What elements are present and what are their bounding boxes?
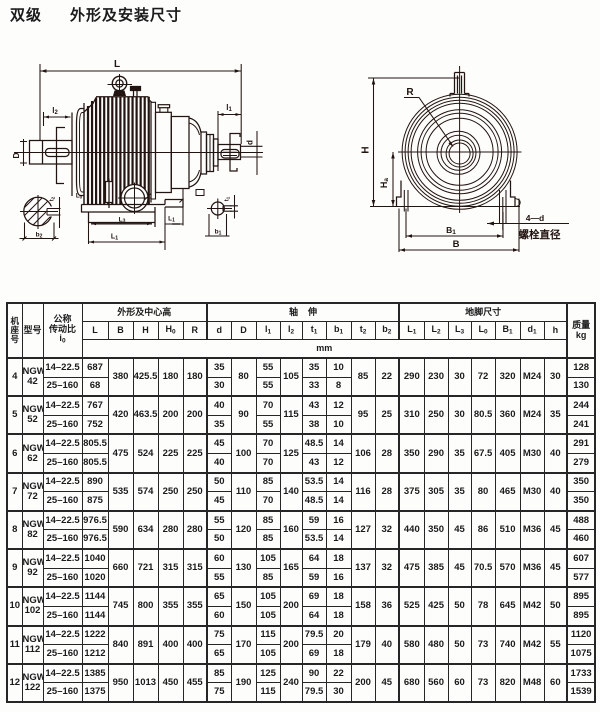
svg-text:L1: L1 [168, 216, 175, 224]
svg-text:B: B [453, 239, 460, 250]
svg-text:L3: L3 [119, 217, 126, 225]
svg-text:4—d: 4—d [526, 213, 544, 223]
svg-text:R: R [406, 87, 414, 98]
svg-text:b1: b1 [215, 229, 222, 237]
svg-text:l1: l1 [226, 103, 232, 113]
svg-text:l2: l2 [52, 106, 58, 116]
svg-text:L0: L0 [76, 194, 83, 200]
svg-text:L: L [114, 59, 120, 70]
svg-text:t2: t2 [50, 196, 56, 201]
svg-text:t1: t1 [225, 196, 231, 201]
svg-text:B1: B1 [446, 225, 456, 236]
svg-text:L1: L1 [111, 234, 118, 242]
svg-text:d: d [246, 140, 255, 145]
svg-text:Ha: Ha [379, 178, 390, 189]
svg-text:b2: b2 [36, 232, 43, 240]
svg-text:H: H [361, 146, 372, 153]
svg-text:D: D [11, 152, 21, 158]
svg-text:螺栓直径: 螺栓直径 [519, 228, 561, 241]
